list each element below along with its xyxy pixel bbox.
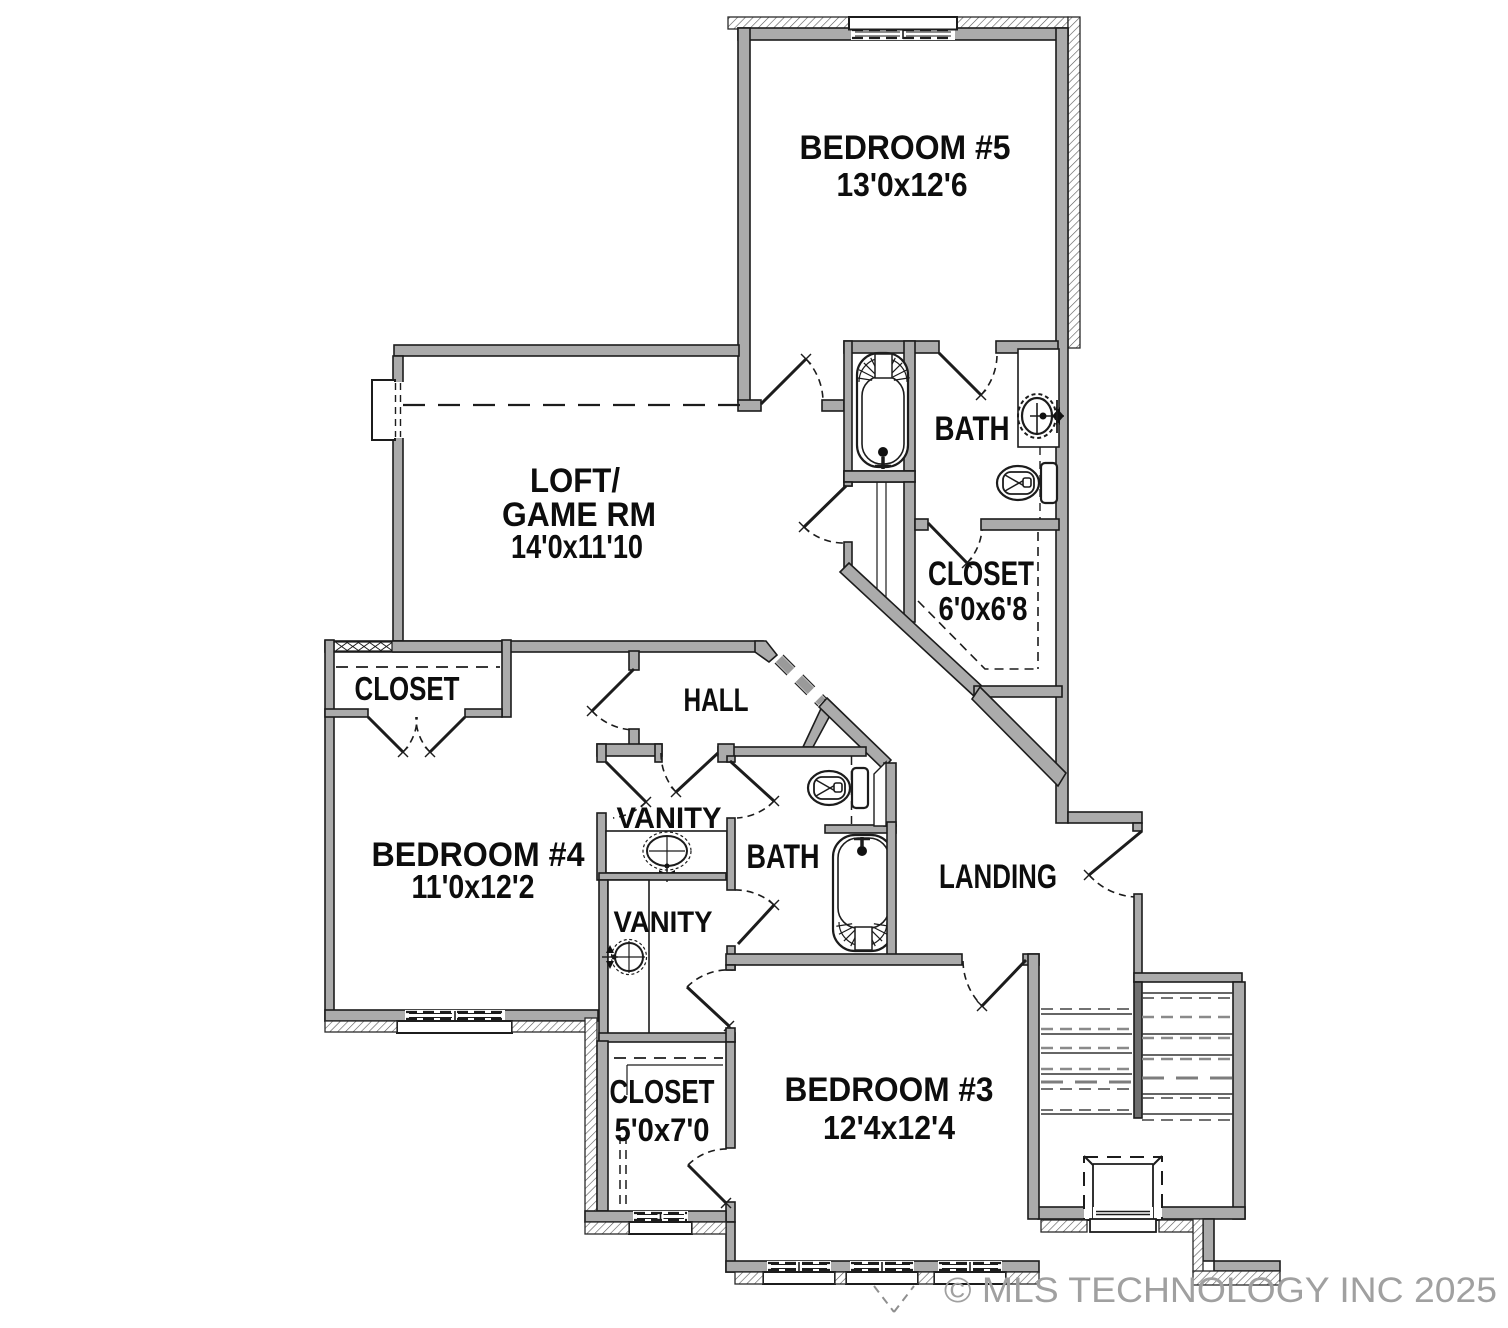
svg-text:CLOSET: CLOSET bbox=[928, 555, 1034, 593]
svg-text:BATH: BATH bbox=[935, 410, 1010, 448]
svg-text:LOFT/: LOFT/ bbox=[530, 462, 621, 500]
svg-text:BATH: BATH bbox=[747, 838, 820, 876]
svg-text:HALL: HALL bbox=[684, 682, 749, 718]
svg-text:13'0x12'6: 13'0x12'6 bbox=[837, 166, 968, 203]
svg-text:11'0x12'2: 11'0x12'2 bbox=[412, 868, 535, 905]
svg-text:CLOSET: CLOSET bbox=[355, 670, 460, 707]
svg-text:© MLS TECHNOLOGY INC 2025: © MLS TECHNOLOGY INC 2025 bbox=[944, 1271, 1497, 1310]
svg-text:VANITY: VANITY bbox=[614, 906, 713, 939]
svg-text:14'0x11'10: 14'0x11'10 bbox=[511, 528, 643, 565]
svg-text:CLOSET: CLOSET bbox=[610, 1073, 715, 1110]
svg-text:BEDROOM #5: BEDROOM #5 bbox=[800, 129, 1011, 167]
svg-text:LANDING: LANDING bbox=[939, 858, 1057, 896]
svg-text:BEDROOM #3: BEDROOM #3 bbox=[785, 1071, 994, 1109]
svg-text:12'4x12'4: 12'4x12'4 bbox=[823, 1109, 956, 1146]
svg-text:5'0x7'0: 5'0x7'0 bbox=[615, 1112, 710, 1148]
svg-text:VANITY: VANITY bbox=[617, 802, 722, 835]
svg-text:6'0x6'8: 6'0x6'8 bbox=[939, 590, 1028, 627]
